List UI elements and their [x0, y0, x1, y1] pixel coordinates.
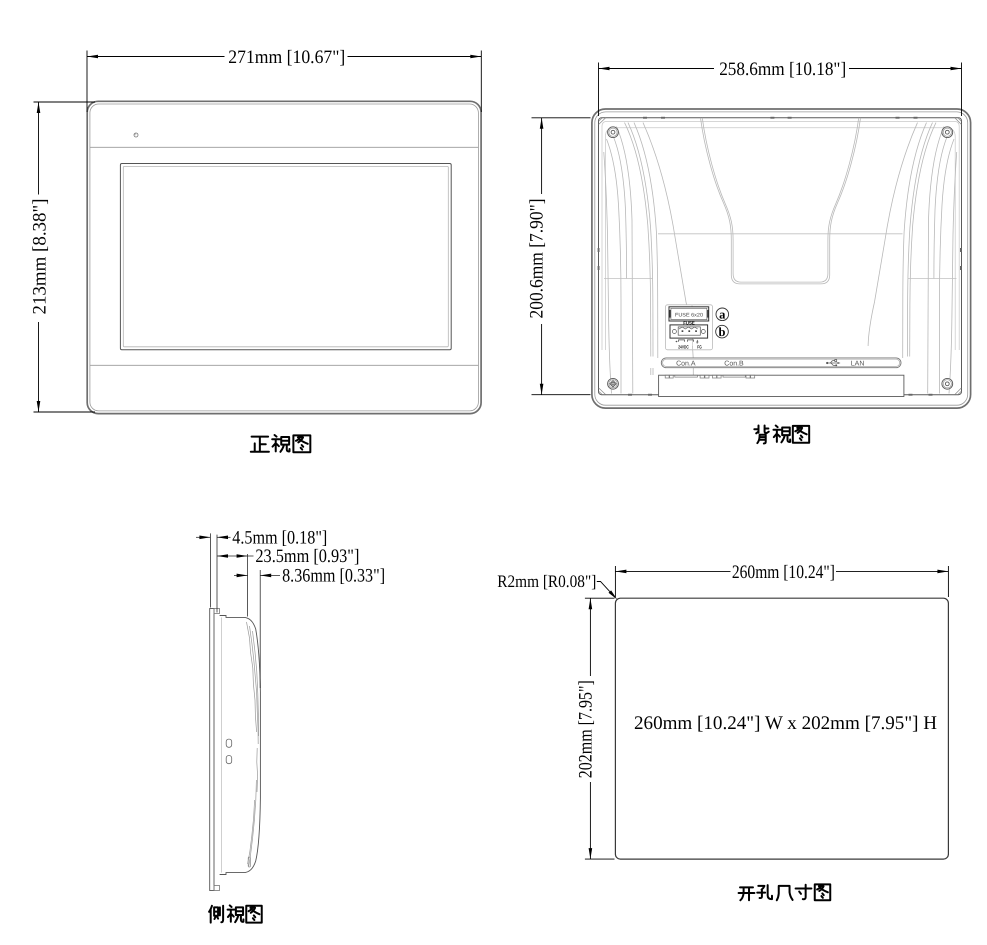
svg-text:271mm [10.67"]: 271mm [10.67"] [228, 47, 345, 68]
svg-text:23.5mm [0.93"]: 23.5mm [0.93"] [255, 546, 359, 567]
svg-text:a: a [719, 308, 726, 322]
svg-text:R2mm [R0.08"]: R2mm [R0.08"] [497, 571, 596, 591]
svg-text:8.36mm [0.33"]: 8.36mm [0.33"] [282, 566, 385, 587]
svg-text:260mm [10.24"]: 260mm [10.24"] [732, 562, 835, 583]
svg-text:213mm [8.38"]: 213mm [8.38"] [29, 199, 50, 315]
svg-text:FUSE 6x20: FUSE 6x20 [675, 313, 703, 319]
svg-text:258.6mm [10.18"]: 258.6mm [10.18"] [719, 59, 846, 80]
svg-text:Con.A: Con.A [676, 361, 696, 368]
svg-text:FG: FG [697, 344, 702, 349]
svg-text:200.6mm [7.90"]: 200.6mm [7.90"] [527, 199, 548, 319]
svg-text:Con.B: Con.B [724, 361, 744, 368]
svg-text:b: b [719, 325, 726, 339]
svg-text:LAN: LAN [851, 361, 865, 368]
svg-text:260mm [10.24"] W x 202mm [7.95: 260mm [10.24"] W x 202mm [7.95"] H [634, 713, 937, 734]
svg-text:24VDC: 24VDC [678, 344, 689, 349]
svg-text:202mm [7.95"]: 202mm [7.95"] [575, 680, 596, 778]
